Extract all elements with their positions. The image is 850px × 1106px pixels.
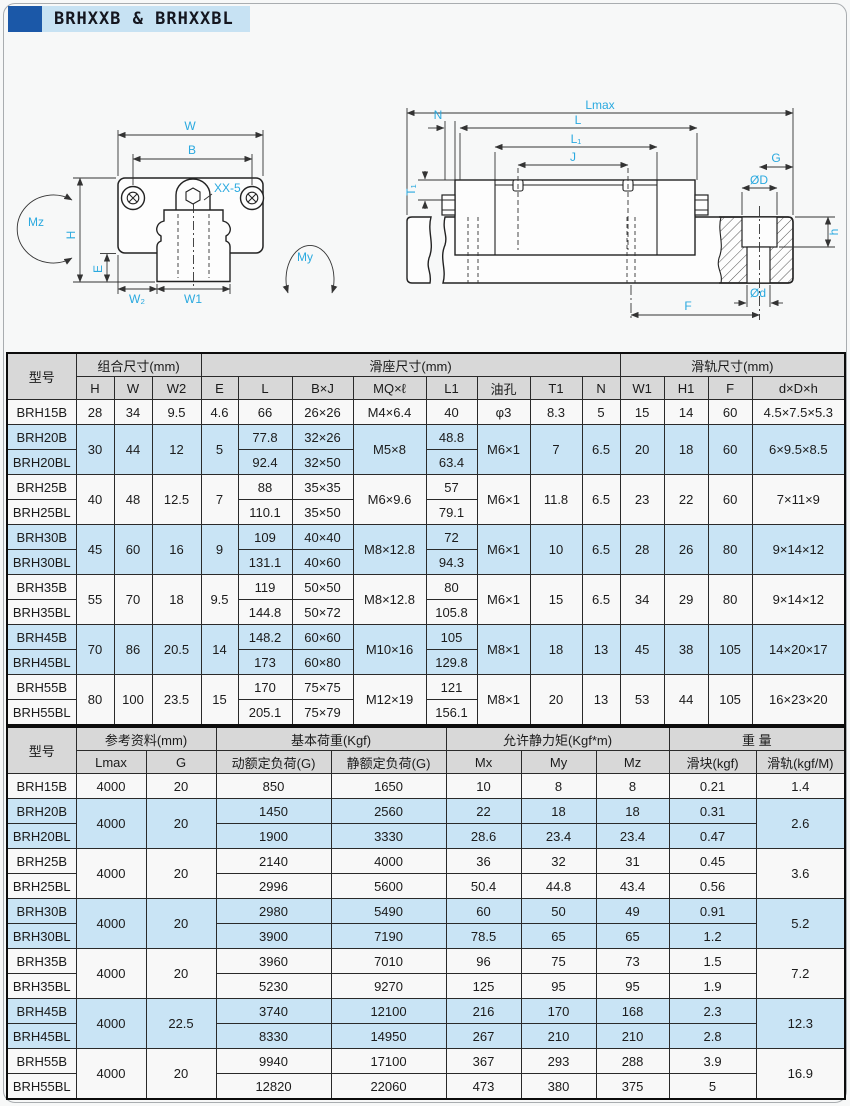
dim-label-n: N [434, 108, 443, 122]
spec-cell: 50×72 [292, 600, 353, 625]
spec-cell: 850 [216, 774, 331, 799]
dim-label-l1: L₁ [571, 132, 582, 146]
spec-cell: 77.8 [238, 425, 292, 450]
column-header: 静额定负荷(G) [331, 751, 446, 774]
spec-cell: 20 [620, 425, 664, 475]
column-header: F [708, 377, 752, 400]
model-cell: BRH45BL [7, 650, 76, 675]
spec-cell: 3.9 [669, 1049, 756, 1074]
spec-cell: 8 [521, 774, 596, 799]
spec-cell: 38 [664, 625, 708, 675]
column-header: L1 [426, 377, 477, 400]
moment-arc-mz [17, 195, 72, 263]
spec-cell: 60 [708, 400, 752, 425]
spec-cell: 7.2 [756, 949, 845, 999]
spec-cell: 2.3 [669, 999, 756, 1024]
spec-cell: 2980 [216, 899, 331, 924]
dim-label-h-small: h [827, 229, 841, 236]
spec-cell: 7 [201, 475, 238, 525]
spec-cell: 45 [620, 625, 664, 675]
dim-label-e: E [91, 265, 105, 273]
spec-cell: 65 [521, 924, 596, 949]
column-group-header: 重 量 [669, 727, 845, 751]
column-header-row: HWW2ELB×JMQ×ℓL1油孔T1NW1H1Fd×D×h [7, 377, 845, 400]
dim-label-j: J [570, 150, 576, 164]
spec-cell: 92.4 [238, 450, 292, 475]
dim-label-lmax: Lmax [585, 98, 614, 112]
spec-cell: 75×79 [292, 700, 353, 726]
model-cell: BRH30BL [7, 924, 76, 949]
spec-cell: 4000 [331, 849, 446, 874]
column-header: W1 [620, 377, 664, 400]
spec-cell: 50×50 [292, 575, 353, 600]
spec-cell: 29 [664, 575, 708, 625]
model-cell: BRH20B [7, 799, 76, 824]
carriage-block-side [455, 180, 695, 255]
spec-cell: 367 [446, 1049, 521, 1074]
spec-cell: 9 [201, 525, 238, 575]
spec-cell: 86 [114, 625, 152, 675]
spec-cell: 3900 [216, 924, 331, 949]
spec-cell: 70 [114, 575, 152, 625]
spec-cell: 131.1 [238, 550, 292, 575]
spec-cell: 7190 [331, 924, 446, 949]
spec-cell: 94.3 [426, 550, 477, 575]
spec-cell: 293 [521, 1049, 596, 1074]
spec-cell: 9270 [331, 974, 446, 999]
spec-cell: 20 [146, 774, 216, 799]
spec-cell: 40×40 [292, 525, 353, 550]
spec-cell: 1450 [216, 799, 331, 824]
column-group-header: 滑轨尺寸(mm) [620, 353, 845, 377]
spec-cell: 26×26 [292, 400, 353, 425]
spec-cell: 105.8 [426, 600, 477, 625]
spec-cell: 49 [596, 899, 669, 924]
spec-cell: 6×9.5×8.5 [752, 425, 845, 475]
dim-label-h: H [64, 231, 78, 240]
spec-cell: 45 [76, 525, 114, 575]
dim-label-w: W [184, 119, 196, 133]
spec-cell: 0.56 [669, 874, 756, 899]
spec-cell: 119 [238, 575, 292, 600]
model-cell: BRH15B [7, 774, 76, 799]
spec-cell: 15 [530, 575, 582, 625]
spec-cell: 32×50 [292, 450, 353, 475]
mounting-screw-left [122, 187, 145, 210]
model-cell: BRH35BL [7, 600, 76, 625]
spec-cell: 22 [446, 799, 521, 824]
group-header-row: 型号组合尺寸(mm)滑座尺寸(mm)滑轨尺寸(mm) [7, 353, 845, 377]
model-cell: BRH55BL [7, 1074, 76, 1100]
spec-cell: 4000 [76, 799, 146, 849]
table-row: BRH55B4000209940171003672932883.916.9 [7, 1049, 845, 1074]
spec-cell: 0.91 [669, 899, 756, 924]
model-cell: BRH45BL [7, 1024, 76, 1049]
spec-cell: 55 [76, 575, 114, 625]
spec-cell: 60×60 [292, 625, 353, 650]
spec-cell: 473 [446, 1074, 521, 1100]
spec-cell: 7010 [331, 949, 446, 974]
dim-label-w1: W1 [184, 292, 202, 306]
spec-cell: 121 [426, 675, 477, 700]
spec-cell: 15 [201, 675, 238, 726]
spec-cell: 80 [708, 525, 752, 575]
table-row: BRH25B400020214040003632310.453.6 [7, 849, 845, 874]
dim-label-od-big: ØD [750, 173, 768, 187]
spec-cell: 4000 [76, 899, 146, 949]
spec-cell: 125 [446, 974, 521, 999]
spec-cell: M6×1 [477, 425, 530, 475]
spec-cell: 32×26 [292, 425, 353, 450]
spec-cell: 12 [152, 425, 201, 475]
spec-cell: 95 [596, 974, 669, 999]
spec-cell: 60 [114, 525, 152, 575]
spec-cell: 129.8 [426, 650, 477, 675]
model-cell: BRH25BL [7, 500, 76, 525]
dimensions-table: 型号组合尺寸(mm)滑座尺寸(mm)滑轨尺寸(mm)HWW2ELB×JMQ×ℓL… [6, 352, 846, 726]
spec-cell: M6×1 [477, 525, 530, 575]
spec-cell: M8×1 [477, 625, 530, 675]
spec-cell: 80 [708, 575, 752, 625]
spec-cell: 43.4 [596, 874, 669, 899]
table-row: BRH45B708620.514148.260×60M10×16105M8×11… [7, 625, 845, 650]
spec-cell: 12100 [331, 999, 446, 1024]
callout-label-xx5: XX-5 [214, 181, 241, 195]
model-cell: BRH25B [7, 849, 76, 874]
spec-cell: 23.4 [596, 824, 669, 849]
spec-cell: 1650 [331, 774, 446, 799]
spec-cell: 26 [664, 525, 708, 575]
spec-cell: 109 [238, 525, 292, 550]
spec-cell: 6.5 [582, 475, 620, 525]
spec-cell: 3330 [331, 824, 446, 849]
spec-cell: 9.5 [201, 575, 238, 625]
spec-cell: 168 [596, 999, 669, 1024]
spec-cell: 13 [582, 675, 620, 726]
spec-cell: 44.8 [521, 874, 596, 899]
table-row: BRH55B8010023.51517075×75M12×19121M8×120… [7, 675, 845, 700]
spec-cell: 13 [582, 625, 620, 675]
spec-cell: 48.8 [426, 425, 477, 450]
spec-cell: 5 [669, 1074, 756, 1100]
spec-cell: 4000 [76, 949, 146, 999]
spec-cell: 23 [620, 475, 664, 525]
table-row: BRH25B404812.578835×35M6×9.657M6×111.86.… [7, 475, 845, 500]
dim-label-b: B [188, 143, 196, 157]
dim-label-f: F [684, 299, 691, 313]
bolt-hole [747, 247, 770, 283]
column-header: T1 [530, 377, 582, 400]
spec-cell: 22.5 [146, 999, 216, 1049]
spec-cell: 5600 [331, 874, 446, 899]
spec-cell: 20 [146, 799, 216, 849]
spec-cell: 65 [596, 924, 669, 949]
spec-cell: 80 [76, 675, 114, 726]
dim-label-g: G [771, 151, 780, 165]
model-cell: BRH35BL [7, 974, 76, 999]
spec-cell: 10 [530, 525, 582, 575]
column-header: d×D×h [752, 377, 845, 400]
spec-cell: 20 [146, 849, 216, 899]
spec-cell: 88 [238, 475, 292, 500]
spec-cell: 6.5 [582, 425, 620, 475]
spec-cell: 20 [530, 675, 582, 726]
spec-cell: 44 [114, 425, 152, 475]
spec-cell: 105 [708, 675, 752, 726]
spec-cell: 20 [146, 949, 216, 999]
column-header: My [521, 751, 596, 774]
table-row: BRH15B400020850165010880.211.4 [7, 774, 845, 799]
spec-cell: 60 [708, 475, 752, 525]
spec-cell: 2.8 [669, 1024, 756, 1049]
table-row: BRH45B400022.53740121002161701682.312.3 [7, 999, 845, 1024]
spec-cell: 288 [596, 1049, 669, 1074]
spec-cell: 40 [426, 400, 477, 425]
spec-cell: 3.6 [756, 849, 845, 899]
spec-cell: 72 [426, 525, 477, 550]
spec-cell: 5 [201, 425, 238, 475]
model-cell: BRH35B [7, 575, 76, 600]
spec-cell: M8×12.8 [353, 575, 426, 625]
spec-cell: 79.1 [426, 500, 477, 525]
column-header: H1 [664, 377, 708, 400]
model-cell: BRH20B [7, 425, 76, 450]
spec-cell: 110.1 [238, 500, 292, 525]
table-row: BRH35B5570189.511950×50M8×12.880M6×1156.… [7, 575, 845, 600]
end-screw-right [695, 195, 708, 215]
page-title: BRHXXB & BRHXXBL [54, 9, 234, 29]
spec-cell: M5×8 [353, 425, 426, 475]
model-cell: BRH35B [7, 949, 76, 974]
spec-cell: 4000 [76, 774, 146, 799]
spec-cell: 0.47 [669, 824, 756, 849]
dim-label-t1: T₁ [404, 184, 418, 195]
spec-cell: 35×50 [292, 500, 353, 525]
spec-cell: 148.2 [238, 625, 292, 650]
spec-cell: 12820 [216, 1074, 331, 1100]
model-cell: BRH30B [7, 525, 76, 550]
spec-cell: M6×9.6 [353, 475, 426, 525]
spec-cell: 105 [708, 625, 752, 675]
spec-cell: M4×6.4 [353, 400, 426, 425]
spec-cell: 210 [596, 1024, 669, 1049]
spec-cell: 6.5 [582, 525, 620, 575]
spec-cell: 60 [446, 899, 521, 924]
spec-cell: M6×1 [477, 575, 530, 625]
spec-cell: 15 [620, 400, 664, 425]
spec-cell: 63.4 [426, 450, 477, 475]
spec-cell: 267 [446, 1024, 521, 1049]
load-ratings-table: 型号参考资料(mm)基本荷重(Kgf)允许静力矩(Kgf*m)重 量LmaxG动… [6, 726, 846, 1100]
spec-cell: 1.2 [669, 924, 756, 949]
spec-cell: 18 [664, 425, 708, 475]
spec-cell: 14950 [331, 1024, 446, 1049]
spec-cell: 12.5 [152, 475, 201, 525]
column-header: 油孔 [477, 377, 530, 400]
spec-cell: 48 [114, 475, 152, 525]
spec-cell: 16 [152, 525, 201, 575]
spec-cell: M6×1 [477, 475, 530, 525]
spec-cell: 5490 [331, 899, 446, 924]
spec-cell: 10 [446, 774, 521, 799]
spec-cell: 3960 [216, 949, 331, 974]
table-row: BRH35B400020396070109675731.57.2 [7, 949, 845, 974]
spec-cell: 0.21 [669, 774, 756, 799]
mounting-screw-right [241, 187, 264, 210]
spec-cell: 60 [708, 425, 752, 475]
grease-nipple-opening [176, 179, 210, 210]
model-cell: BRH20BL [7, 450, 76, 475]
column-group-header: 滑座尺寸(mm) [201, 353, 620, 377]
spec-cell: 16.9 [756, 1049, 845, 1100]
side-view-diagram: Lmax N L L₁ J G ØD h T₁ F Ød [398, 88, 850, 340]
spec-cell: 28 [76, 400, 114, 425]
spec-cell: 9940 [216, 1049, 331, 1074]
spec-cell: M8×1 [477, 675, 530, 726]
spec-cell: 144.8 [238, 600, 292, 625]
spec-cell: 1.4 [756, 774, 845, 799]
column-header: L [238, 377, 292, 400]
spec-cell: 380 [521, 1074, 596, 1100]
dim-label-l: L [575, 113, 582, 127]
column-group-header: 基本荷重(Kgf) [216, 727, 446, 751]
spec-cell: 80 [426, 575, 477, 600]
column-header-row: LmaxG动额定负荷(G)静额定负荷(G)MxMyMz滑块(kgf)滑轨(kgf… [7, 751, 845, 774]
spec-cell: 170 [238, 675, 292, 700]
column-header: Lmax [76, 751, 146, 774]
spec-cell: M12×19 [353, 675, 426, 726]
model-cell: BRH20BL [7, 824, 76, 849]
spec-cell: 1900 [216, 824, 331, 849]
table-row: BRH30B456016910940×40M8×12.872M6×1106.52… [7, 525, 845, 550]
spec-cell: 23.5 [152, 675, 201, 726]
spec-cell: 34 [620, 575, 664, 625]
spec-cell: 17100 [331, 1049, 446, 1074]
spec-cell: 57 [426, 475, 477, 500]
rail-left-end [407, 217, 431, 283]
spec-cell: 95 [521, 974, 596, 999]
spec-cell: 96 [446, 949, 521, 974]
spec-cell: 11.8 [530, 475, 582, 525]
moment-label-my: My [297, 250, 313, 264]
spec-cell: 170 [521, 999, 596, 1024]
spec-cell: 12.3 [756, 999, 845, 1049]
spec-cell: 34 [114, 400, 152, 425]
spec-cell: 18 [521, 799, 596, 824]
model-cell: BRH55B [7, 675, 76, 700]
catalog-page: BRHXXB & BRHXXBL [0, 0, 850, 1106]
spec-cell: 210 [521, 1024, 596, 1049]
column-header: N [582, 377, 620, 400]
spec-cell: 60×80 [292, 650, 353, 675]
spec-cell: 73 [596, 949, 669, 974]
spec-cell: φ3 [477, 400, 530, 425]
spec-cell: 35×35 [292, 475, 353, 500]
spec-cell: 66 [238, 400, 292, 425]
spec-cell: 0.45 [669, 849, 756, 874]
column-header: 滑块(kgf) [669, 751, 756, 774]
spec-cell: 20 [146, 1049, 216, 1100]
spec-cell: M8×12.8 [353, 525, 426, 575]
model-cell: BRH55BL [7, 700, 76, 726]
column-header: 滑轨(kgf/M) [756, 751, 845, 774]
cross-section-diagram: W B H E W₂ W1 XX-5 Mz My [0, 88, 360, 340]
column-group-header: 组合尺寸(mm) [76, 353, 201, 377]
spec-cell: 4000 [76, 849, 146, 899]
spec-cell: 18 [596, 799, 669, 824]
spec-cell: 20.5 [152, 625, 201, 675]
model-cell: BRH25B [7, 475, 76, 500]
spec-cell: 40×60 [292, 550, 353, 575]
spec-cell: 50 [521, 899, 596, 924]
brand-square [8, 6, 42, 32]
column-header: B×J [292, 377, 353, 400]
column-header: Mx [446, 751, 521, 774]
spec-cell: 70 [76, 625, 114, 675]
spec-cell: 4.6 [201, 400, 238, 425]
spec-cell: 9×14×12 [752, 525, 845, 575]
spec-cell: 14×20×17 [752, 625, 845, 675]
spec-cell: 32 [521, 849, 596, 874]
column-header: 动额定负荷(G) [216, 751, 331, 774]
spec-cell: 30 [76, 425, 114, 475]
spec-cell: 9×14×12 [752, 575, 845, 625]
column-header: G [146, 751, 216, 774]
spec-cell: 205.1 [238, 700, 292, 726]
spec-cell: 78.5 [446, 924, 521, 949]
spec-cell: 16×23×20 [752, 675, 845, 726]
model-cell: BRH30B [7, 899, 76, 924]
spec-cell: 156.1 [426, 700, 477, 726]
table-row: BRH30B400020298054906050490.915.2 [7, 899, 845, 924]
spec-cell: 50.4 [446, 874, 521, 899]
spec-cell: 53 [620, 675, 664, 726]
spec-cell: 6.5 [582, 575, 620, 625]
spec-cell: 2140 [216, 849, 331, 874]
spec-cell: 14 [201, 625, 238, 675]
spec-cell: M10×16 [353, 625, 426, 675]
column-group-header: 型号 [7, 727, 76, 774]
model-cell: BRH25BL [7, 874, 76, 899]
dim-label-od-small: Ød [750, 286, 766, 300]
spec-cell: 75×75 [292, 675, 353, 700]
spec-cell: 18 [152, 575, 201, 625]
spec-cell: 216 [446, 999, 521, 1024]
spec-cell: 1.5 [669, 949, 756, 974]
column-header: E [201, 377, 238, 400]
spec-cell: 40 [76, 475, 114, 525]
column-group-header: 参考资料(mm) [76, 727, 216, 751]
spec-cell: 5.2 [756, 899, 845, 949]
spec-cell: 3740 [216, 999, 331, 1024]
title-bar: BRHXXB & BRHXXBL [42, 6, 250, 32]
moment-label-mz: Mz [28, 215, 44, 229]
end-screw-left [442, 195, 455, 215]
column-header: W [114, 377, 152, 400]
spec-cell: 22 [664, 475, 708, 525]
column-header: Mz [596, 751, 669, 774]
spec-cell: 0.31 [669, 799, 756, 824]
spec-cell: 14 [664, 400, 708, 425]
spec-cell: 105 [426, 625, 477, 650]
spec-cell: 2996 [216, 874, 331, 899]
spec-cell: 1.9 [669, 974, 756, 999]
spec-cell: 28.6 [446, 824, 521, 849]
spec-cell: 173 [238, 650, 292, 675]
spec-cell: 8.3 [530, 400, 582, 425]
column-header: W2 [152, 377, 201, 400]
spec-cell: 20 [146, 899, 216, 949]
